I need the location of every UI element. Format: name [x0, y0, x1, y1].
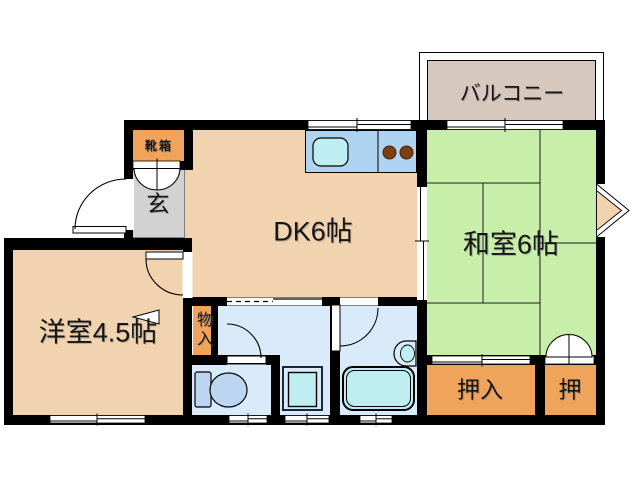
washroom-window	[285, 414, 329, 426]
oshi-double-doors	[545, 335, 594, 366]
kitchen-sink-icon	[313, 138, 348, 166]
bathtub-icon	[343, 367, 414, 410]
bay-chevron-icon	[597, 184, 630, 237]
bath-door-arc	[332, 305, 379, 351]
floorplan-canvas: バルコニー DK6帖 和室6帖 洋室4.5帖 玄 靴箱 物入 押入 押	[0, 0, 638, 480]
label-dk: DK6帖	[273, 219, 353, 246]
balcony-window	[447, 118, 563, 132]
oshiire-sliding-doors	[432, 354, 530, 367]
washing-machine-icon	[283, 367, 322, 410]
bath-window	[360, 414, 392, 426]
toilet-window	[229, 414, 267, 426]
label-shoe-box: 靴箱	[145, 140, 173, 152]
label-balcony: バルコニー	[460, 84, 565, 105]
label-western-room: 洋室4.5帖	[39, 320, 158, 347]
kitchen-window	[308, 118, 411, 132]
label-japanese-room: 和室6帖	[463, 232, 559, 259]
western-room-window	[50, 414, 145, 426]
western-room-door-arc	[146, 252, 183, 295]
label-oshiire: 押入	[457, 379, 503, 402]
stove-burners-icon	[383, 146, 413, 159]
label-oshi: 押	[559, 379, 582, 402]
label-entrance: 玄	[147, 193, 170, 216]
wash-basin-icon	[394, 341, 416, 366]
toilet-door-arc	[227, 324, 266, 364]
label-storage: 物入	[194, 311, 210, 349]
toilet-icon	[195, 372, 247, 407]
entrance-door-arc	[73, 179, 126, 233]
